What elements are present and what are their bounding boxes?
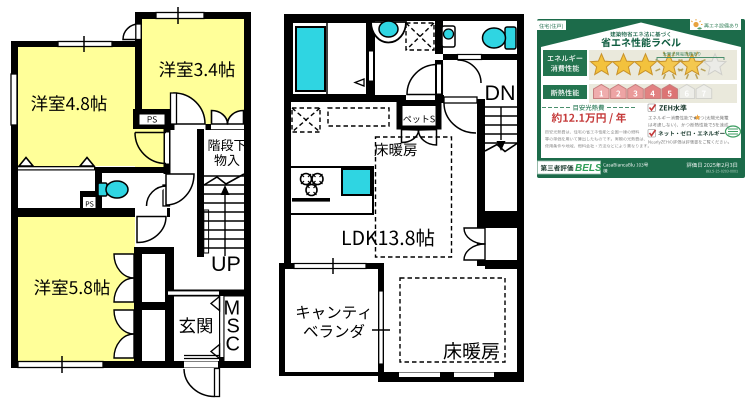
svg-text:BELS: BELS [575,163,602,174]
svg-text:C: C [226,334,240,356]
svg-text:DN: DN [485,81,516,105]
svg-text:UP: UP [211,252,241,276]
